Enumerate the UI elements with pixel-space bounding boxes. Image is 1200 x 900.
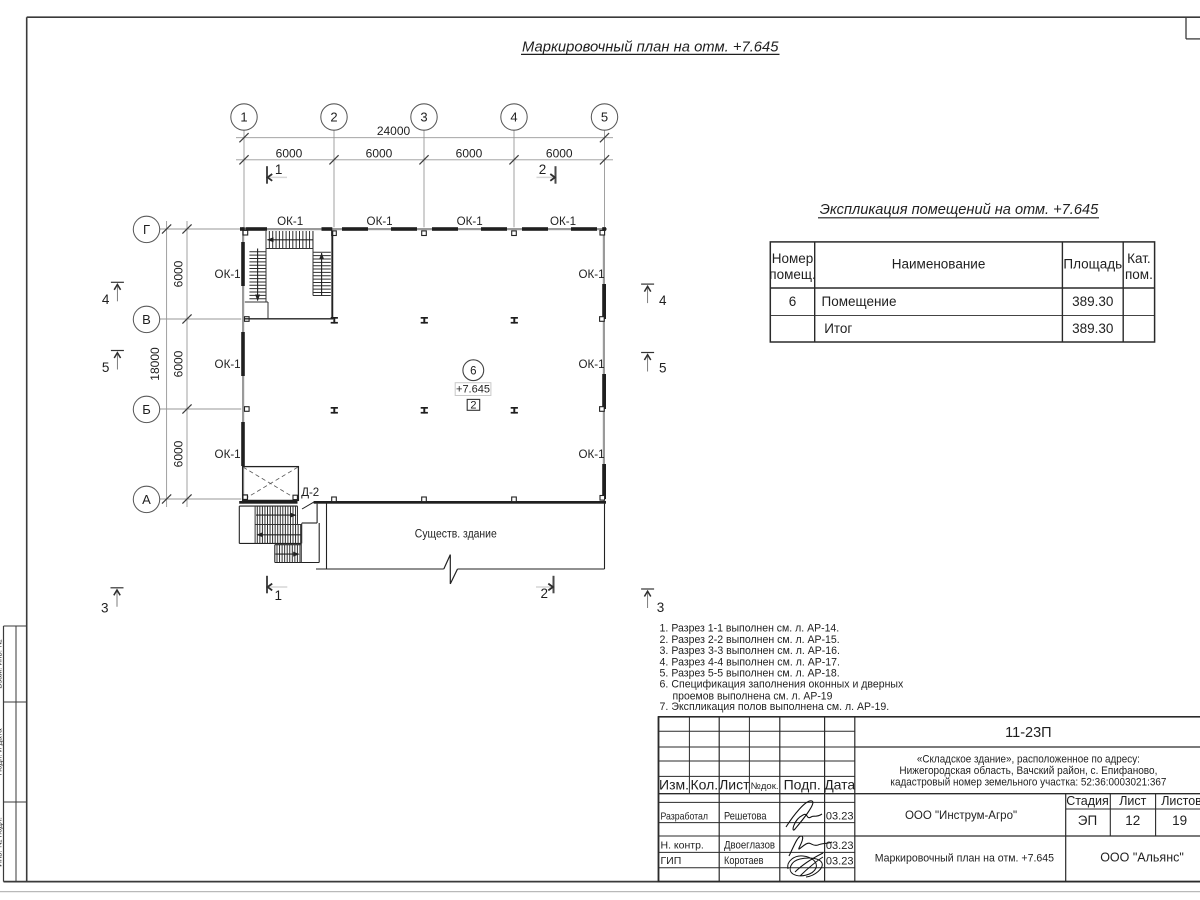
svg-text:Помещение: Помещение [822,294,897,309]
svg-text:03.23: 03.23 [826,840,854,852]
svg-text:Разрез 2-2 выполнен см. л. АР-: Разрез 2-2 выполнен см. л. АР-15. [671,634,839,646]
svg-text:Коротаев: Коротаев [724,855,764,867]
svg-text:Кат.: Кат. [1127,251,1151,266]
svg-text:«Складское здание», расположен: «Складское здание», расположенное по адр… [917,754,1140,766]
svg-text:Итог: Итог [824,321,852,336]
svg-text:Стадия: Стадия [1066,794,1109,808]
svg-text:19: 19 [1172,813,1187,828]
svg-text:Взам. инв. №: Взам. инв. № [0,639,4,689]
svg-text:12: 12 [1125,813,1140,828]
svg-text:+7.645: +7.645 [456,384,490,396]
svg-text:1: 1 [275,162,283,177]
svg-text:Решетова: Решетова [724,810,767,822]
svg-text:Разрез 1-1 выполнен см. л. АР-: Разрез 1-1 выполнен см. л. АР-14. [671,623,839,635]
svg-text:03.23: 03.23 [826,811,854,823]
svg-text:6: 6 [470,366,476,378]
svg-text:Маркировочный план на отм. +7.: Маркировочный план на отм. +7.645 [522,40,779,56]
svg-text:ОК-1: ОК-1 [578,268,604,281]
svg-text:Экспликация помещений на отм.: Экспликация помещений на отм. +7.645 [820,201,1099,218]
svg-text:Г: Г [143,222,150,237]
svg-text:ОК-1: ОК-1 [578,358,604,371]
svg-text:ОК-1: ОК-1 [457,215,483,228]
svg-text:ОК-1: ОК-1 [550,215,576,228]
svg-text:Маркировочный план на отм. +7.: Маркировочный план на отм. +7.645 [875,852,1054,864]
svg-text:ОК-1: ОК-1 [277,215,303,228]
svg-text:ОК-1: ОК-1 [215,448,241,461]
svg-text:Кол.: Кол. [690,777,718,793]
svg-text:2: 2 [470,400,476,412]
svg-text:Инв. № подл.: Инв. № подл. [0,817,4,867]
svg-text:4: 4 [510,110,517,125]
svg-text:ООО "Альянс": ООО "Альянс" [1100,850,1184,864]
svg-text:1: 1 [274,588,282,603]
svg-text:11-23П: 11-23П [1005,725,1051,741]
svg-text:Д-2: Д-2 [301,487,319,499]
svg-text:6000: 6000 [456,147,483,161]
svg-text:5: 5 [102,360,110,375]
svg-text:5: 5 [601,110,608,125]
svg-text:2: 2 [541,586,549,601]
svg-text:Площадь: Площадь [1063,257,1122,272]
svg-text:Лист: Лист [719,777,750,793]
svg-text:ОК-1: ОК-1 [578,448,604,461]
svg-text:Двоеглазов: Двоеглазов [724,840,775,852]
svg-text:03.23: 03.23 [826,855,854,867]
svg-text:1: 1 [240,110,247,125]
svg-text:№док.: №док. [751,781,779,792]
svg-text:Номер: Номер [772,251,814,266]
svg-text:Разработал: Разработал [661,810,709,822]
svg-text:ОК-1: ОК-1 [215,358,241,371]
svg-text:Спецификация заполнения оконны: Спецификация заполнения оконных и дверны… [671,679,904,691]
svg-text:Листов: Листов [1161,794,1200,808]
svg-text:5: 5 [659,361,667,376]
svg-text:Наименование: Наименование [892,257,986,272]
svg-text:6000: 6000 [171,350,185,377]
svg-text:24000: 24000 [377,124,411,138]
svg-text:ГИП: ГИП [661,855,682,867]
svg-text:6000: 6000 [276,147,303,161]
svg-text:1.: 1. [660,623,669,635]
svg-text:Б: Б [142,402,151,417]
svg-text:18000: 18000 [148,347,162,381]
svg-text:2: 2 [330,110,337,125]
svg-text:Разрез 3-3 выполнен см. л. АР-: Разрез 3-3 выполнен см. л. АР-16. [671,645,840,657]
svg-text:кадастровый номер земельного у: кадастровый номер земельного участка: 52… [890,777,1166,789]
svg-text:ОК-1: ОК-1 [367,215,393,228]
svg-text:3: 3 [101,600,109,615]
svg-text:389.30: 389.30 [1072,321,1113,336]
svg-text:3.: 3. [660,645,669,657]
svg-text:3: 3 [420,110,427,125]
svg-text:389.30: 389.30 [1072,294,1113,309]
svg-text:Экспликация полов выполнена см: Экспликация полов выполнена см. л. АР-19… [671,701,889,713]
svg-text:А: А [142,492,151,507]
svg-text:Подп. и дата: Подп. и дата [0,728,4,776]
svg-text:4: 4 [659,293,667,308]
svg-text:6000: 6000 [546,147,573,161]
svg-text:ОК-1: ОК-1 [215,268,241,281]
svg-text:Изм.: Изм. [659,777,689,793]
svg-text:ООО "Инструм-Агро": ООО "Инструм-Агро" [905,810,1017,822]
svg-text:Нижегородская область, Вачский: Нижегородская область, Вачский район, с.… [899,765,1157,777]
svg-text:помещ.: помещ. [769,267,815,282]
svg-text:3: 3 [657,600,665,615]
svg-text:Лист: Лист [1119,794,1146,808]
svg-text:6000: 6000 [171,260,185,287]
svg-text:Дата: Дата [824,777,855,793]
svg-text:7.: 7. [660,701,669,713]
svg-text:пом.: пом. [1125,267,1153,282]
svg-text:6: 6 [789,294,797,309]
svg-text:ЭП: ЭП [1078,813,1097,828]
svg-text:Н. контр.: Н. контр. [661,840,704,852]
svg-text:4: 4 [102,292,110,307]
svg-text:6000: 6000 [171,440,185,467]
svg-text:В: В [142,312,151,327]
svg-text:Разрез 5-5 выполнен см. л. АР-: Разрез 5-5 выполнен см. л. АР-18. [671,667,839,679]
svg-text:6.: 6. [660,679,669,691]
svg-text:2: 2 [539,162,547,177]
svg-text:6000: 6000 [366,147,393,161]
svg-text:Подп.: Подп. [784,777,821,793]
svg-text:5.: 5. [660,667,669,679]
svg-text:Существ. здание: Существ. здание [415,529,497,541]
svg-text:2.: 2. [660,634,669,646]
